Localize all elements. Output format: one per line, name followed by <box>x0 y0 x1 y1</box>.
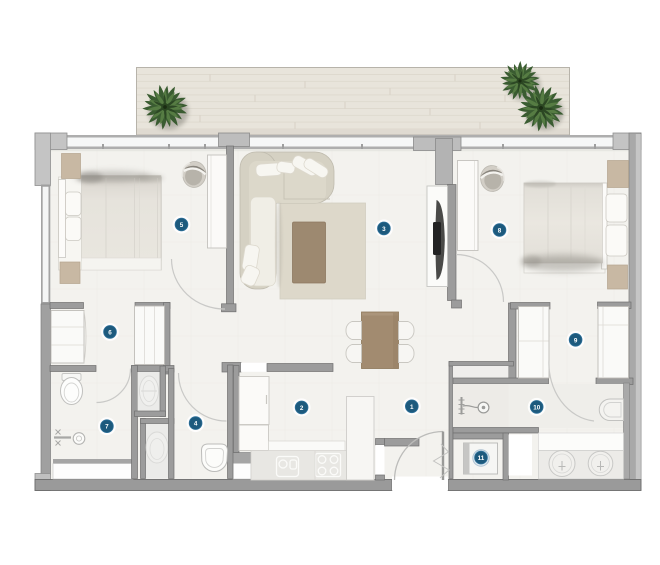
svg-text:2: 2 <box>300 405 304 412</box>
svg-text:5: 5 <box>180 222 184 229</box>
svg-text:8: 8 <box>498 228 502 235</box>
svg-text:11: 11 <box>478 455 485 462</box>
svg-text:1: 1 <box>410 404 414 411</box>
svg-text:9: 9 <box>574 337 578 344</box>
svg-text:6: 6 <box>108 329 112 336</box>
svg-text:4: 4 <box>194 421 198 428</box>
svg-text:7: 7 <box>105 424 109 431</box>
svg-text:3: 3 <box>382 226 386 233</box>
svg-text:10: 10 <box>533 404 541 411</box>
